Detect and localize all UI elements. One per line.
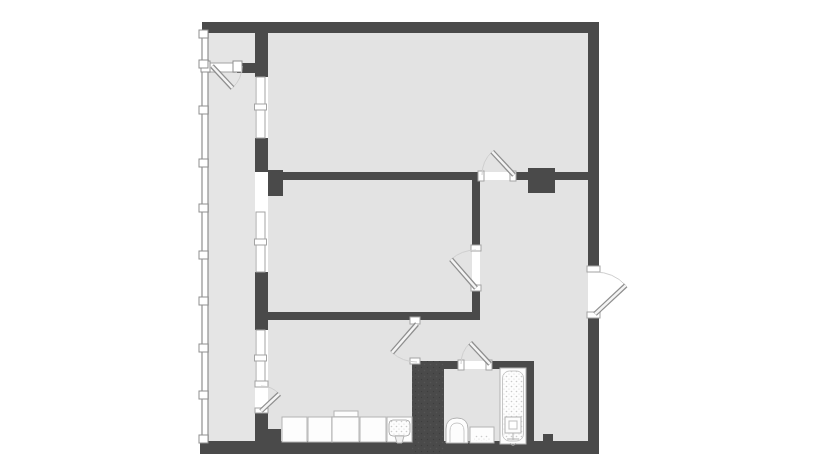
vent-shaft [528, 168, 555, 193]
window-3-mullion [255, 355, 267, 361]
kitchen-cooktop-lip [334, 411, 358, 417]
midroom-top-stub [268, 170, 283, 196]
glazing-joint-6 [199, 251, 208, 259]
kitchen-sink-basin [389, 420, 410, 436]
midroom-right-wall-lower [472, 288, 480, 320]
entrance-door-arc [595, 272, 626, 285]
bath-right-wall [526, 361, 534, 454]
right-wall-upper [588, 22, 599, 271]
glazing-joint-9 [199, 391, 208, 399]
midroom-bottom-wall [262, 312, 480, 320]
partition-door-jamb-right [233, 61, 242, 72]
glazing-joint-3 [199, 106, 208, 114]
toilet [446, 418, 468, 443]
balcony-sep-wall-a [255, 33, 268, 77]
kitchen-cabinet-1 [282, 417, 307, 442]
floor-plan [0, 0, 828, 476]
midroom-top-wall [268, 172, 480, 180]
glazing-joint-5 [199, 204, 208, 212]
floor-top-room [268, 33, 588, 172]
balcony-sep-wall-c [255, 272, 268, 330]
glazing-joint-1 [199, 30, 208, 38]
entrance-door-leaf-face [595, 285, 626, 314]
window-1-mullion [255, 104, 267, 110]
balcony-sep-wall-d [255, 412, 268, 441]
right-wall-lower [588, 314, 599, 454]
floor-balcony [208, 33, 255, 441]
bathroom-vanity-grate [474, 435, 490, 441]
toproom-door-jamb-left [478, 171, 484, 181]
balcony-sep-wall-b [255, 138, 268, 172]
kitchen-cabinet-2 [308, 417, 332, 442]
bottom-wall-bump [543, 434, 553, 441]
floor-hallway-right [534, 361, 588, 441]
balcony-glazing [202, 33, 208, 441]
kitchen-cabinet-3 [360, 417, 386, 442]
floor-hallway-mid [415, 320, 588, 361]
bathtub-mixer-inner [509, 421, 517, 429]
hall-divider-right [555, 172, 588, 180]
glazing-joint-8 [199, 344, 208, 352]
entrance-jamb-top [587, 266, 600, 272]
living-door-jamb-bottom [410, 358, 420, 364]
kitchen-cooktop [332, 417, 359, 442]
floor-middle-room [268, 180, 472, 312]
midroom-right-wall-upper [472, 172, 480, 248]
glazing-joint-7 [199, 297, 208, 305]
top-wall [202, 22, 598, 33]
floor-hallway-upper [480, 180, 588, 320]
kitchen-sink-faucet [395, 436, 404, 443]
window-2-mullion [255, 239, 267, 245]
glazing-joint-4 [199, 159, 208, 167]
glazing-joint-2 [199, 60, 208, 68]
plan-root [199, 22, 626, 454]
kitchen-bath-wall-stipple [412, 361, 444, 454]
glazing-joint-10 [199, 435, 208, 443]
floor-plan-viewer [0, 0, 828, 476]
